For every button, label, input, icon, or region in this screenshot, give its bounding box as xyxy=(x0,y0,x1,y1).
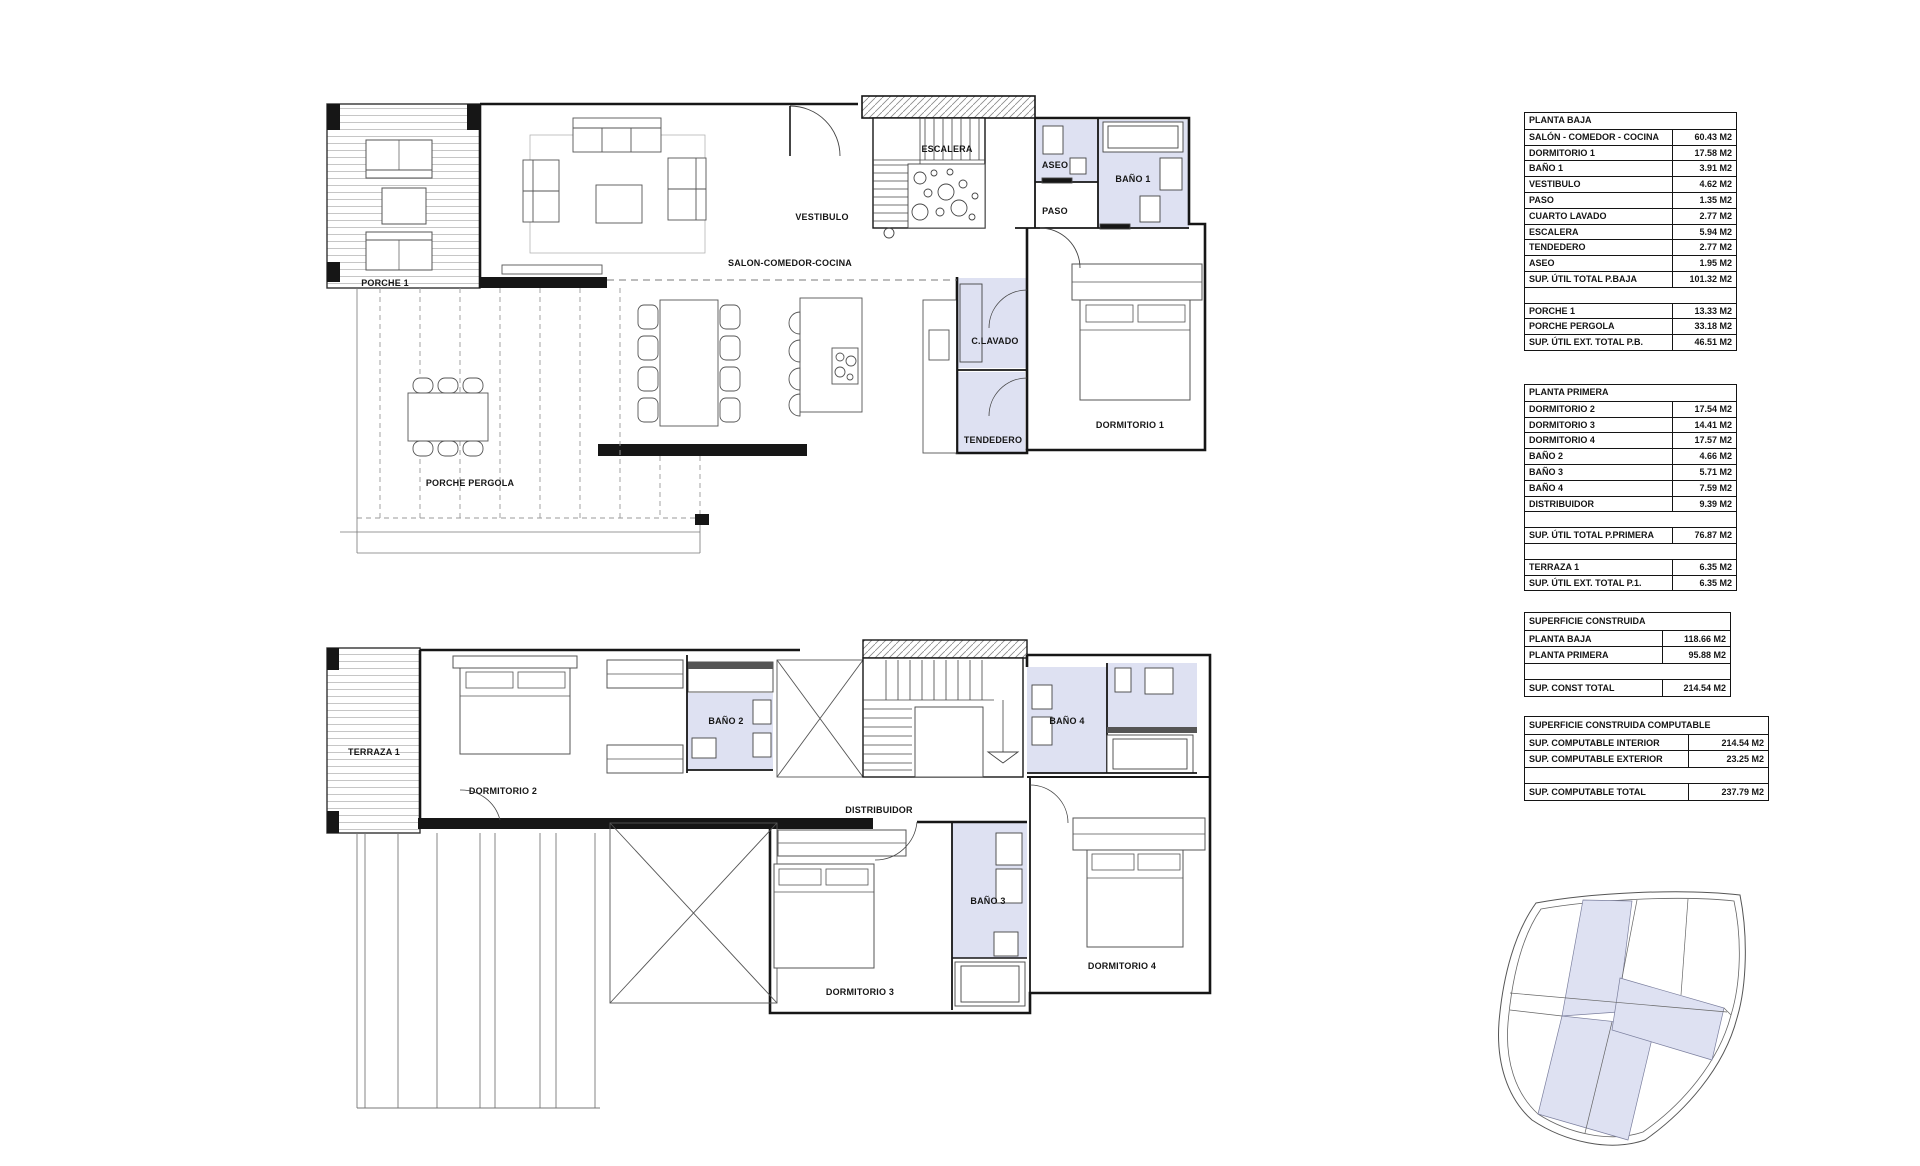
table-title-row: SUPERFICIE CONSTRUIDA COMPUTABLE xyxy=(1525,717,1768,734)
table-row: BAÑO 35.71 M2 xyxy=(1525,464,1736,480)
row-label: SALÓN - COMEDOR - COCINA xyxy=(1525,130,1672,145)
planta-primera-plan: TERRAZA 1 DORMITORIO 2 BAÑO 2 DISTRIBUID… xyxy=(327,640,1210,1108)
table-row xyxy=(1525,663,1730,680)
row-value: 3.91 M2 xyxy=(1672,161,1736,176)
closets xyxy=(607,660,683,773)
row-value: 118.66 M2 xyxy=(1662,631,1730,647)
table-row: SUP. COMPUTABLE INTERIOR214.54 M2 xyxy=(1525,734,1768,751)
table-row: VESTIBULO4.62 M2 xyxy=(1525,176,1736,192)
room-label-bano-4: BAÑO 4 xyxy=(1049,716,1084,726)
row-label: BAÑO 3 xyxy=(1525,465,1672,480)
row-label: PORCHE 1 xyxy=(1525,304,1672,319)
row-value: 1.95 M2 xyxy=(1672,256,1736,271)
table-row: DISTRIBUIDOR9.39 M2 xyxy=(1525,496,1736,512)
table-title: SUPERFICIE CONSTRUIDA xyxy=(1525,613,1730,630)
room-label-distribuidor: DISTRIBUIDOR xyxy=(845,805,913,815)
row-label: SUP. ÚTIL EXT. TOTAL P.1. xyxy=(1525,576,1672,591)
row-label: PLANTA BAJA xyxy=(1525,631,1662,647)
table-row: SUP. ÚTIL EXT. TOTAL P.B.46.51 M2 xyxy=(1525,334,1736,350)
row-value: 13.33 M2 xyxy=(1672,304,1736,319)
table-row xyxy=(1525,287,1736,303)
row-label: PASO xyxy=(1525,193,1672,208)
room-label-bano-3: BAÑO 3 xyxy=(970,896,1005,906)
table-row: ESCALERA5.94 M2 xyxy=(1525,224,1736,240)
room-label-dormitorio-4: DORMITORIO 4 xyxy=(1088,961,1156,971)
table-row: DORMITORIO 217.54 M2 xyxy=(1525,401,1736,417)
row-label: PORCHE PERGOLA xyxy=(1525,319,1672,334)
table-row xyxy=(1525,767,1768,784)
wall-chunk xyxy=(480,277,607,288)
blank-cell xyxy=(1525,664,1730,680)
row-label: SUP. COMPUTABLE INTERIOR xyxy=(1525,735,1688,751)
table-row: TERRAZA 16.35 M2 xyxy=(1525,559,1736,575)
table-title: PLANTA PRIMERA xyxy=(1525,385,1736,401)
row-value: 237.79 M2 xyxy=(1688,784,1768,800)
room-label-bano-1: BAÑO 1 xyxy=(1115,174,1150,184)
table-row: DORMITORIO 417.57 M2 xyxy=(1525,432,1736,448)
table-title: SUPERFICIE CONSTRUIDA COMPUTABLE xyxy=(1525,717,1768,734)
table-row: PORCHE 113.33 M2 xyxy=(1525,303,1736,319)
row-label: VESTIBULO xyxy=(1525,177,1672,192)
room-label-c-lavado: C.LAVADO xyxy=(971,336,1018,346)
table-title-row: SUPERFICIE CONSTRUIDA xyxy=(1525,613,1730,630)
table-row: TENDEDERO2.77 M2 xyxy=(1525,239,1736,255)
row-value: 14.41 M2 xyxy=(1672,418,1736,433)
row-value: 1.35 M2 xyxy=(1672,193,1736,208)
room-label-porche-1: PORCHE 1 xyxy=(361,278,409,288)
row-label: SUP. COMPUTABLE EXTERIOR xyxy=(1525,751,1688,767)
room-label-escalera: ESCALERA xyxy=(921,144,972,154)
table-row: SUP. ÚTIL TOTAL P.PRIMERA76.87 M2 xyxy=(1525,527,1736,543)
stair-p1 xyxy=(863,640,1027,777)
row-label: TENDEDERO xyxy=(1525,240,1672,255)
row-label: DORMITORIO 2 xyxy=(1525,402,1672,417)
kitchen xyxy=(789,298,957,453)
row-label: SUP. ÚTIL TOTAL P.PRIMERA xyxy=(1525,528,1672,543)
room-label-bano-2: BAÑO 2 xyxy=(708,716,743,726)
entry-door xyxy=(790,106,840,156)
dining-set xyxy=(638,300,740,426)
row-label: DORMITORIO 1 xyxy=(1525,146,1672,161)
site-plan xyxy=(1499,892,1746,1145)
room-label-aseo: ASEO xyxy=(1042,160,1068,170)
void-small xyxy=(777,660,863,777)
table-row: DORMITORIO 314.41 M2 xyxy=(1525,417,1736,433)
row-value: 4.62 M2 xyxy=(1672,177,1736,192)
row-value: 5.71 M2 xyxy=(1672,465,1736,480)
row-value: 101.32 M2 xyxy=(1672,272,1736,287)
table-row: SUP. CONST TOTAL214.54 M2 xyxy=(1525,679,1730,696)
row-value: 17.57 M2 xyxy=(1672,433,1736,448)
table-row: BAÑO 24.66 M2 xyxy=(1525,448,1736,464)
stair-block xyxy=(862,96,1035,238)
table-title: PLANTA BAJA xyxy=(1525,113,1736,129)
table-row: SALÓN - COMEDOR - COCINA60.43 M2 xyxy=(1525,129,1736,145)
row-label: TERRAZA 1 xyxy=(1525,560,1672,575)
table-planta-primera: PLANTA PRIMERADORMITORIO 217.54 M2DORMIT… xyxy=(1524,384,1737,591)
blank-cell xyxy=(1525,512,1736,527)
row-value: 2.77 M2 xyxy=(1672,209,1736,224)
plan-sheet: PORCHE 1 SALON-COMEDOR-COCINA VESTIBULO … xyxy=(0,0,1920,1166)
room-label-terraza-1: TERRAZA 1 xyxy=(348,747,400,757)
room-label-dormitorio-2: DORMITORIO 2 xyxy=(469,786,537,796)
bedroom-1 xyxy=(1040,228,1202,400)
row-value: 5.94 M2 xyxy=(1672,225,1736,240)
row-label: SUP. COMPUTABLE TOTAL xyxy=(1525,784,1688,800)
row-value: 9.39 M2 xyxy=(1672,497,1736,512)
void-big xyxy=(610,823,777,1003)
table-row xyxy=(1525,511,1736,527)
table-row: PLANTA PRIMERA95.88 M2 xyxy=(1525,646,1730,663)
room-label-paso: PASO xyxy=(1042,206,1068,216)
row-value: 7.59 M2 xyxy=(1672,481,1736,496)
table-row: SUP. COMPUTABLE TOTAL237.79 M2 xyxy=(1525,783,1768,800)
row-label: SUP. CONST TOTAL xyxy=(1525,680,1662,696)
blank-cell xyxy=(1525,288,1736,303)
table-row: BAÑO 13.91 M2 xyxy=(1525,160,1736,176)
blank-cell xyxy=(1525,768,1768,784)
row-value: 46.51 M2 xyxy=(1672,335,1736,350)
room-label-dormitorio-3: DORMITORIO 3 xyxy=(826,987,894,997)
row-label: BAÑO 2 xyxy=(1525,449,1672,464)
table-title-row: PLANTA BAJA xyxy=(1525,113,1736,129)
table-row: SUP. COMPUTABLE EXTERIOR23.25 M2 xyxy=(1525,750,1768,767)
row-label: PLANTA PRIMERA xyxy=(1525,647,1662,663)
bedroom-3 xyxy=(774,822,917,968)
row-label: SUP. ÚTIL EXT. TOTAL P.B. xyxy=(1525,335,1672,350)
row-value: 6.35 M2 xyxy=(1672,560,1736,575)
row-value: 33.18 M2 xyxy=(1672,319,1736,334)
row-value: 17.54 M2 xyxy=(1672,402,1736,417)
blank-cell xyxy=(1525,544,1736,559)
table-row: PORCHE PERGOLA33.18 M2 xyxy=(1525,318,1736,334)
room-label-vestibulo: VESTIBULO xyxy=(795,212,848,222)
row-value: 2.77 M2 xyxy=(1672,240,1736,255)
row-value: 6.35 M2 xyxy=(1672,576,1736,591)
room-label-porche-pergola: PORCHE PERGOLA xyxy=(426,478,515,488)
room-label-tendedero: TENDEDERO xyxy=(964,435,1022,445)
row-value: 17.58 M2 xyxy=(1672,146,1736,161)
row-label: SUP. ÚTIL TOTAL P.BAJA xyxy=(1525,272,1672,287)
salon-furniture xyxy=(502,118,706,274)
table-planta-baja: PLANTA BAJASALÓN - COMEDOR - COCINA60.43… xyxy=(1524,112,1737,351)
row-value: 214.54 M2 xyxy=(1662,680,1730,696)
row-label: ESCALERA xyxy=(1525,225,1672,240)
row-value: 4.66 M2 xyxy=(1672,449,1736,464)
table-row: SUP. ÚTIL TOTAL P.BAJA101.32 M2 xyxy=(1525,271,1736,287)
room-label-salon: SALON-COMEDOR-COCINA xyxy=(728,258,852,268)
row-value: 214.54 M2 xyxy=(1688,735,1768,751)
table-row xyxy=(1525,543,1736,559)
row-value: 23.25 M2 xyxy=(1688,751,1768,767)
row-value: 95.88 M2 xyxy=(1662,647,1730,663)
table-row: DORMITORIO 117.58 M2 xyxy=(1525,145,1736,161)
row-value: 60.43 M2 xyxy=(1672,130,1736,145)
table-row: BAÑO 47.59 M2 xyxy=(1525,480,1736,496)
table-row: CUARTO LAVADO2.77 M2 xyxy=(1525,208,1736,224)
room-label-dormitorio-1: DORMITORIO 1 xyxy=(1096,420,1164,430)
row-label: CUARTO LAVADO xyxy=(1525,209,1672,224)
pergola-p1 xyxy=(357,833,600,1108)
table-row: PLANTA BAJA118.66 M2 xyxy=(1525,630,1730,647)
row-label: BAÑO 1 xyxy=(1525,161,1672,176)
row-label: DISTRIBUIDOR xyxy=(1525,497,1672,512)
wall-chunk xyxy=(418,818,873,829)
table-row: SUP. ÚTIL EXT. TOTAL P.1.6.35 M2 xyxy=(1525,575,1736,591)
terraza-1 xyxy=(327,648,420,833)
table-row: PASO1.35 M2 xyxy=(1525,192,1736,208)
table-superficie-construida: SUPERFICIE CONSTRUIDAPLANTA BAJA118.66 M… xyxy=(1524,612,1731,697)
row-label: DORMITORIO 4 xyxy=(1525,433,1672,448)
row-label: ASEO xyxy=(1525,256,1672,271)
table-title-row: PLANTA PRIMERA xyxy=(1525,385,1736,401)
row-label: BAÑO 4 xyxy=(1525,481,1672,496)
wall-chunk xyxy=(598,444,807,456)
table-superficie-computable: SUPERFICIE CONSTRUIDA COMPUTABLESUP. COM… xyxy=(1524,716,1769,801)
row-label: DORMITORIO 3 xyxy=(1525,418,1672,433)
table-row: ASEO1.95 M2 xyxy=(1525,255,1736,271)
planta-baja-plan: PORCHE 1 SALON-COMEDOR-COCINA VESTIBULO … xyxy=(327,96,1205,553)
porche-1 xyxy=(327,104,480,288)
row-value: 76.87 M2 xyxy=(1672,528,1736,543)
